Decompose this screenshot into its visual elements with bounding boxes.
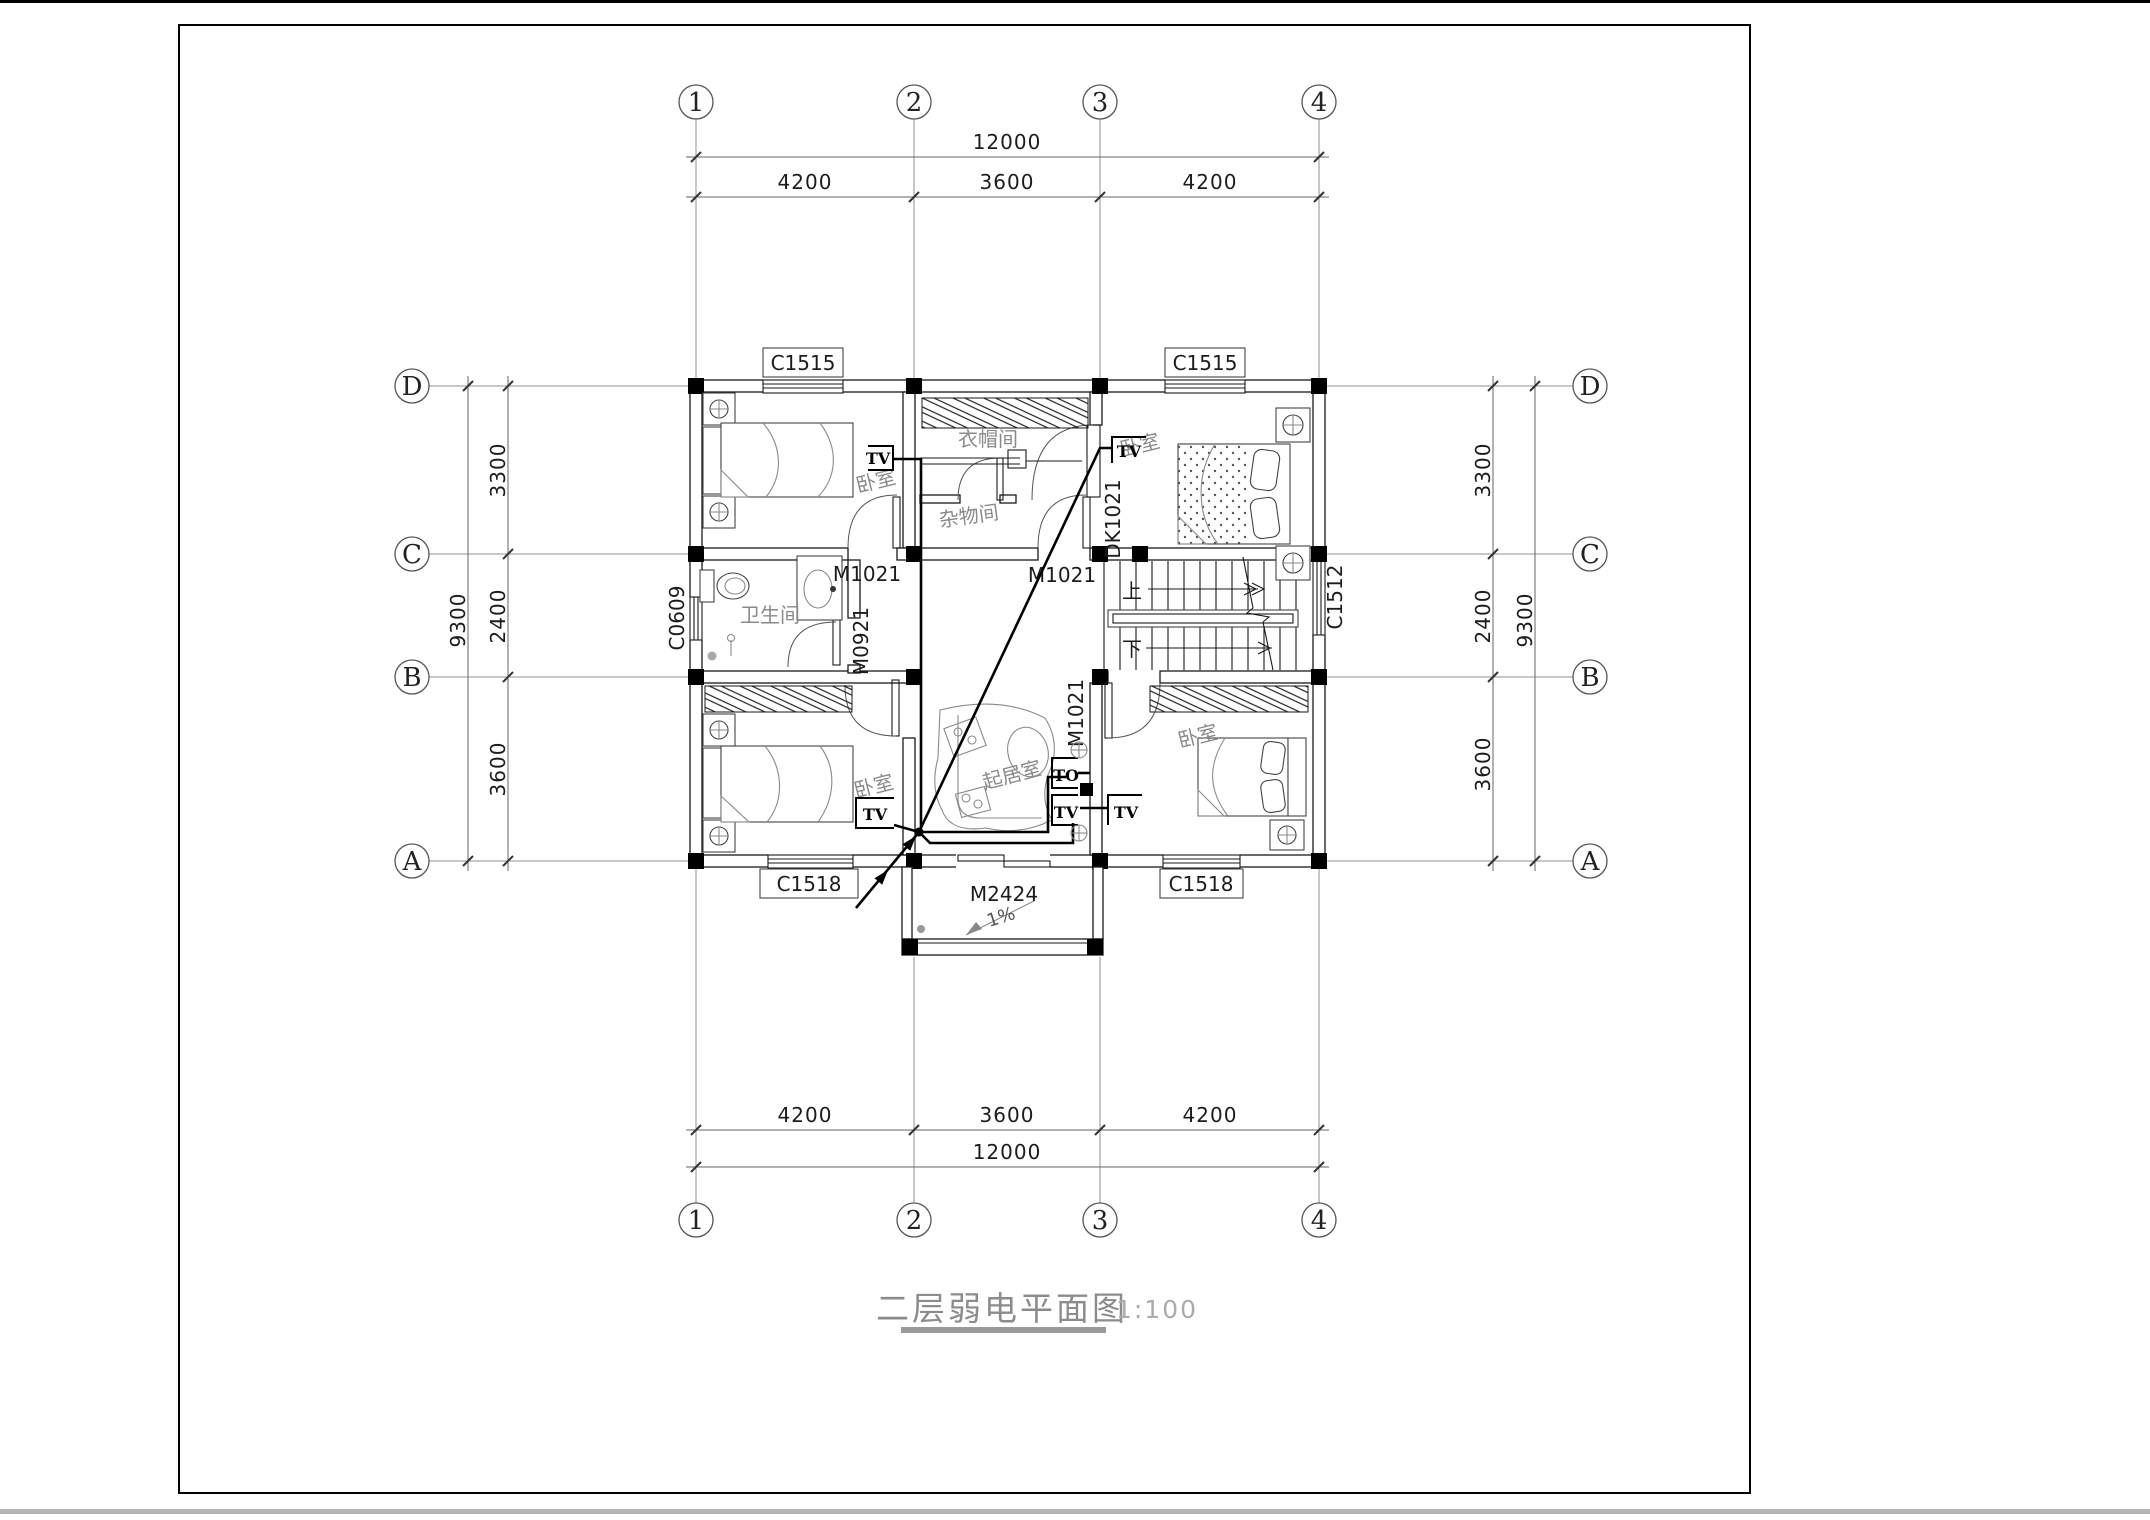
bed-bottom-right xyxy=(1198,738,1306,850)
grid-row-d-right: D xyxy=(1580,372,1601,402)
label-c0609: C0609 xyxy=(665,586,689,651)
title-scale: 1:100 xyxy=(1116,1295,1198,1324)
drawing-canvas: 12000 4200 3600 4200 4200 3600 4200 1200… xyxy=(0,0,2150,1520)
grid-row-c-left: C xyxy=(402,540,422,570)
door-m2424-opening xyxy=(956,854,1050,868)
grid-col-1-bottom: 1 xyxy=(688,1206,705,1236)
label-c1512: C1512 xyxy=(1323,565,1347,630)
door-bathroom-m0921 xyxy=(788,620,840,667)
room-label-storage: 杂物间 xyxy=(937,500,1000,532)
title-underline xyxy=(901,1327,1106,1333)
door-dk1021 xyxy=(1032,425,1100,500)
dim-top-seg3: 4200 xyxy=(1183,170,1238,194)
grid-row-b-right: B xyxy=(1580,663,1599,693)
wardrobe-hatch-bedroom3 xyxy=(705,686,852,712)
slope-label: 1% xyxy=(984,903,1018,932)
dimension-texts: 12000 4200 3600 4200 4200 3600 4200 1200… xyxy=(446,130,1537,1164)
window-c1518-right xyxy=(1163,854,1240,868)
grid-row-b-left: B xyxy=(402,663,421,693)
title-text: 二层弱电平面图 xyxy=(876,1289,1128,1328)
to-outlet-living: TO xyxy=(1052,758,1079,788)
dim-top-seg2: 3600 xyxy=(980,170,1035,194)
dim-right-seg1: 3300 xyxy=(1471,443,1495,498)
dim-left-seg1: 3300 xyxy=(486,443,510,498)
grid-row-a-left: A xyxy=(402,847,423,877)
bed-bottom-left xyxy=(703,714,853,852)
label-c1515-left: C1515 xyxy=(771,351,836,375)
room-label-bathroom: 卫生间 xyxy=(740,603,800,627)
label-c1518-right: C1518 xyxy=(1169,872,1234,896)
window-c1518-left xyxy=(768,854,853,868)
label-m1021-bedroom4: M1021 xyxy=(1064,679,1088,747)
label-m2424: M2424 xyxy=(970,882,1038,906)
label-m0921: M0921 xyxy=(849,607,873,675)
dim-left-seg3: 3600 xyxy=(486,742,510,797)
wardrobe-hatch-cloakroom xyxy=(922,398,1088,428)
label-dk1021: DK1021 xyxy=(1101,479,1125,558)
tv-text-tl: TV xyxy=(866,449,891,468)
stairs-up-label: 上 xyxy=(1122,579,1142,603)
grid-row-a-right: A xyxy=(1580,847,1601,877)
tv-outlet-bedroom-bl: TV xyxy=(856,798,894,828)
dim-right-seg2: 2400 xyxy=(1471,589,1495,644)
label-m1021-storage: M1021 xyxy=(1028,563,1096,587)
dim-top-seg1: 4200 xyxy=(778,170,833,194)
closet-shelf xyxy=(920,450,1082,468)
grid-row-c-right: C xyxy=(1580,540,1600,570)
tv-outlet-living: TV xyxy=(1052,795,1079,825)
tv-text-tr: TV xyxy=(1117,442,1142,461)
dim-top-total: 12000 xyxy=(973,130,1042,154)
dim-bottom-total: 12000 xyxy=(973,1140,1042,1164)
grid-col-1-top: 1 xyxy=(688,88,705,118)
tv-text-bl: TV xyxy=(863,805,888,824)
grid-col-2-top: 2 xyxy=(906,88,923,118)
grid-col-4-bottom: 4 xyxy=(1311,1206,1328,1236)
distribution-box xyxy=(1080,783,1093,796)
grid-col-2-bottom: 2 xyxy=(906,1206,923,1236)
dim-left-total: 9300 xyxy=(446,593,470,648)
door-bedroom1-m1021 xyxy=(848,495,900,548)
door-bedroom3-m1021 xyxy=(845,680,899,736)
dim-right-seg3: 3600 xyxy=(1471,737,1495,792)
dim-right-total: 9300 xyxy=(1513,593,1537,648)
room-label-cloakroom: 衣帽间 xyxy=(958,427,1018,451)
tv-outlet-bedroom-tl: TV xyxy=(866,446,893,470)
window-c0609 xyxy=(689,597,703,640)
to-text: TO xyxy=(1053,766,1079,785)
dim-left-seg2: 2400 xyxy=(486,589,510,644)
grid-col-4-top: 4 xyxy=(1311,88,1328,118)
room-label-living: 起居室 xyxy=(980,756,1044,795)
dim-bottom-seg3: 4200 xyxy=(1183,1103,1238,1127)
dimension-lines xyxy=(463,152,1540,1172)
drawing-title: 二层弱电平面图 1:100 xyxy=(876,1289,1198,1333)
floor-plan-svg: 12000 4200 3600 4200 4200 3600 4200 1200… xyxy=(0,0,2150,1520)
grid-col-3-top: 3 xyxy=(1092,88,1109,118)
grid-row-d-left: D xyxy=(402,372,423,402)
wardrobe-hatch-bedroom4 xyxy=(1150,686,1308,712)
tv-outlet-bedroom-br: TV xyxy=(1108,795,1142,825)
grid-col-3-bottom: 3 xyxy=(1092,1206,1109,1236)
label-m1021-bedroom1: M1021 xyxy=(833,562,901,586)
label-c1515-right: C1515 xyxy=(1173,351,1238,375)
tv-text-br: TV xyxy=(1114,803,1139,822)
dim-bottom-seg1: 4200 xyxy=(778,1103,833,1127)
bed-top-left xyxy=(703,393,853,528)
window-c1515-right xyxy=(1165,379,1245,393)
window-c1515-left xyxy=(763,379,843,393)
tv-text-living: TV xyxy=(1054,803,1079,822)
label-c1518-left: C1518 xyxy=(777,872,842,896)
dim-bottom-seg2: 3600 xyxy=(980,1103,1035,1127)
stairs-down-label: 下 xyxy=(1122,637,1142,661)
